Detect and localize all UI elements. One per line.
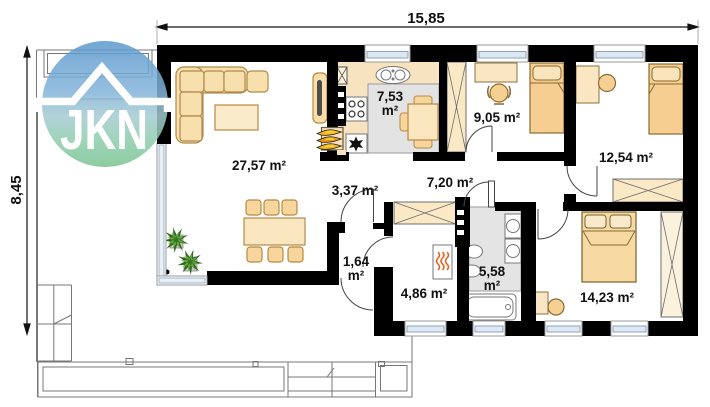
svg-text:m²: m²	[348, 268, 365, 283]
svg-text:JKN: JKN	[60, 98, 148, 162]
svg-text:4,86 m²: 4,86 m²	[401, 286, 448, 301]
svg-text:m²: m²	[484, 278, 501, 293]
svg-text:15,85: 15,85	[407, 10, 445, 27]
svg-text:7,20 m²: 7,20 m²	[427, 175, 474, 190]
svg-text:7,53: 7,53	[377, 89, 404, 104]
svg-text:3,37 m²: 3,37 m²	[332, 183, 379, 198]
svg-text:9,05 m²: 9,05 m²	[474, 110, 521, 125]
svg-text:14,23 m²: 14,23 m²	[580, 290, 635, 305]
svg-text:1,64: 1,64	[343, 254, 370, 269]
svg-text:m²: m²	[382, 103, 399, 118]
svg-text:8,45: 8,45	[8, 175, 25, 204]
svg-text:12,54 m²: 12,54 m²	[599, 150, 654, 165]
svg-text:5,58: 5,58	[479, 264, 506, 279]
svg-text:27,57 m²: 27,57 m²	[232, 158, 287, 173]
